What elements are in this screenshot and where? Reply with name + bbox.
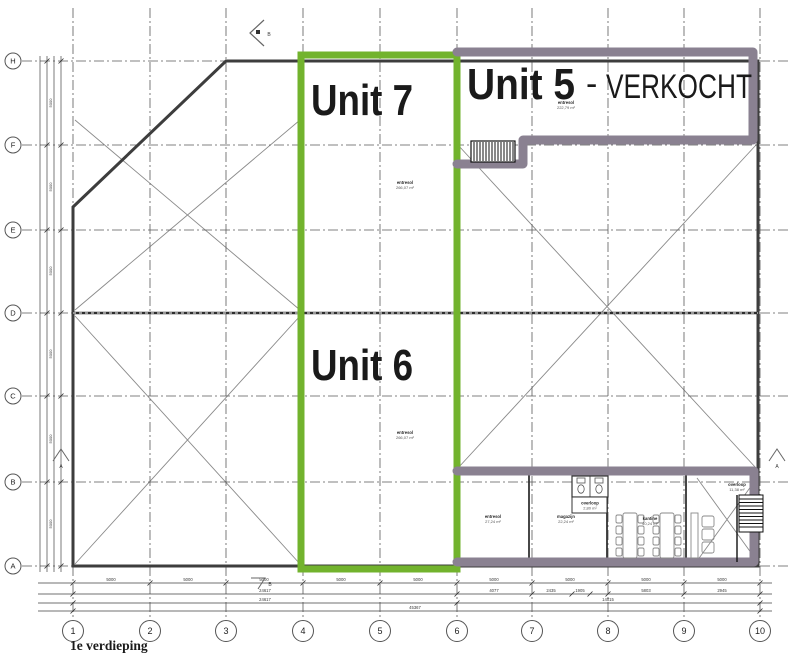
bay-dim-4: 5000	[336, 577, 346, 582]
kantine-chair	[638, 526, 644, 534]
kantine-chair	[638, 548, 644, 556]
row-bubble-label-e: E	[10, 226, 15, 235]
kantine-furniture	[616, 513, 714, 558]
dimension-lines-bottom	[38, 583, 772, 611]
section-marker-a-right-icon	[769, 449, 785, 461]
cross-bracing	[75, 120, 757, 564]
kantine-chair	[616, 548, 622, 556]
col-bubble-label-3: 3	[223, 626, 228, 636]
bay-dimension-labels: 5000 5000 5000 5000 5000 5000 5000 5000 …	[106, 577, 727, 582]
bay-dim-8: 5000	[641, 577, 651, 582]
staircase-top-body	[471, 141, 515, 162]
dim-left-total: 24617	[259, 588, 271, 593]
floor-plan-drawing: 5000 5000 5000 5000 5000 5000 5000 5000 …	[0, 0, 798, 662]
row-bubble-label-a: A	[10, 562, 15, 571]
grid-row-bubbles: H F E D C B A	[5, 53, 21, 574]
col-bubble-label-7: 7	[529, 626, 534, 636]
overloop-wc-value: 2,80 m²	[583, 506, 597, 511]
overloop-stairs-value: 11,38 m²	[729, 487, 745, 492]
bay-dim-9: 5000	[717, 577, 727, 582]
unit5-status-label: VERKOCHT	[606, 68, 752, 106]
left-bay-3: 5000	[48, 266, 53, 276]
overloop-counter	[691, 513, 698, 558]
kantine-chair	[616, 526, 622, 534]
section-marker-a-left-label: A	[59, 464, 63, 470]
dim-sub-3: 1905	[575, 588, 585, 593]
left-bay-4: 5000	[48, 349, 53, 359]
dim-left-total2: 24617	[259, 597, 271, 602]
dim-sub-5: 2945	[717, 588, 727, 593]
unit5-separator: -	[586, 65, 597, 103]
col-bubble-label-10: 10	[755, 626, 765, 636]
section-marker-b-top-dot	[256, 30, 260, 34]
row-bubble-label-c: C	[10, 392, 16, 401]
section-marker-a-right-label: A	[775, 464, 779, 470]
dim-sub-2: 2435	[546, 588, 556, 593]
staircase-bottom-body	[739, 495, 763, 532]
floor-plan-page: 5000 5000 5000 5000 5000 5000 5000 5000 …	[0, 0, 798, 662]
kantine-chair	[675, 526, 681, 534]
col-bubble-label-4: 4	[300, 626, 305, 636]
kantine-chair	[675, 537, 681, 545]
total-dimension-labels: 24617 4077 2435 1905 5803 2945 24617 140…	[259, 588, 727, 610]
col-bubble-label-9: 9	[681, 626, 686, 636]
left-bay-1: 5000	[48, 98, 53, 108]
col-bubble-label-5: 5	[377, 626, 382, 636]
grid-column-bubbles: 1 2 3 4 5 6 7 8 9 10	[63, 621, 771, 642]
bay-dim-5: 5000	[413, 577, 423, 582]
kantine-chair	[675, 515, 681, 523]
col-bubble-label-2: 2	[147, 626, 152, 636]
bay-dim-6: 5000	[489, 577, 499, 582]
kantine-room-value: 40,24 m²	[642, 521, 658, 526]
unit6-label: Unit 6	[311, 341, 413, 390]
dimension-lines-left	[40, 56, 61, 572]
magazijn-room-value: 22,24 m²	[558, 519, 574, 524]
left-bay-5: 5000	[48, 434, 53, 444]
kantine-table-1	[623, 513, 637, 558]
unit7-label: Unit 7	[311, 76, 413, 125]
row-bubble-label-b: B	[10, 478, 15, 487]
kantine-chair	[638, 537, 644, 545]
bay-dim-1: 5000	[106, 577, 116, 582]
unit6-area-value: 266,07 m²	[396, 435, 415, 440]
bay-dim-7: 5000	[565, 577, 575, 582]
dim-right-total: 14015	[602, 597, 614, 602]
drawing-title: 1e verdieping	[70, 638, 148, 653]
row-bubble-label-h: H	[10, 57, 15, 66]
kantine-chair	[616, 515, 622, 523]
entresol-room-value: 27,24 m²	[485, 519, 501, 524]
dim-sub-4: 5803	[641, 588, 651, 593]
unit7-area-value: 266,07 m²	[396, 185, 415, 190]
overloop-bench	[702, 516, 714, 527]
kantine-table-2	[660, 513, 674, 558]
left-bay-2: 5000	[48, 182, 53, 192]
kantine-chair	[616, 537, 622, 545]
overloop-bench	[702, 529, 714, 540]
section-marker-b-top-label: B	[267, 32, 271, 38]
col-bubble-label-1: 1	[70, 626, 75, 636]
kantine-chair	[653, 526, 659, 534]
left-bay-6: 5000	[48, 519, 53, 529]
row-bubble-label-d: D	[10, 309, 16, 318]
staircase-top	[471, 141, 515, 162]
kantine-chair	[675, 548, 681, 556]
dim-overall: 45367	[409, 605, 421, 610]
bay-dim-2: 5000	[183, 577, 193, 582]
unit5-area-value: 222,79 m²	[557, 105, 576, 110]
col-bubble-label-6: 6	[454, 626, 459, 636]
col-bubble-label-8: 8	[605, 626, 610, 636]
kantine-chair	[653, 537, 659, 545]
row-bubble-label-f: F	[11, 141, 16, 150]
dim-sub-1: 4077	[489, 588, 499, 593]
kantine-chair	[653, 548, 659, 556]
